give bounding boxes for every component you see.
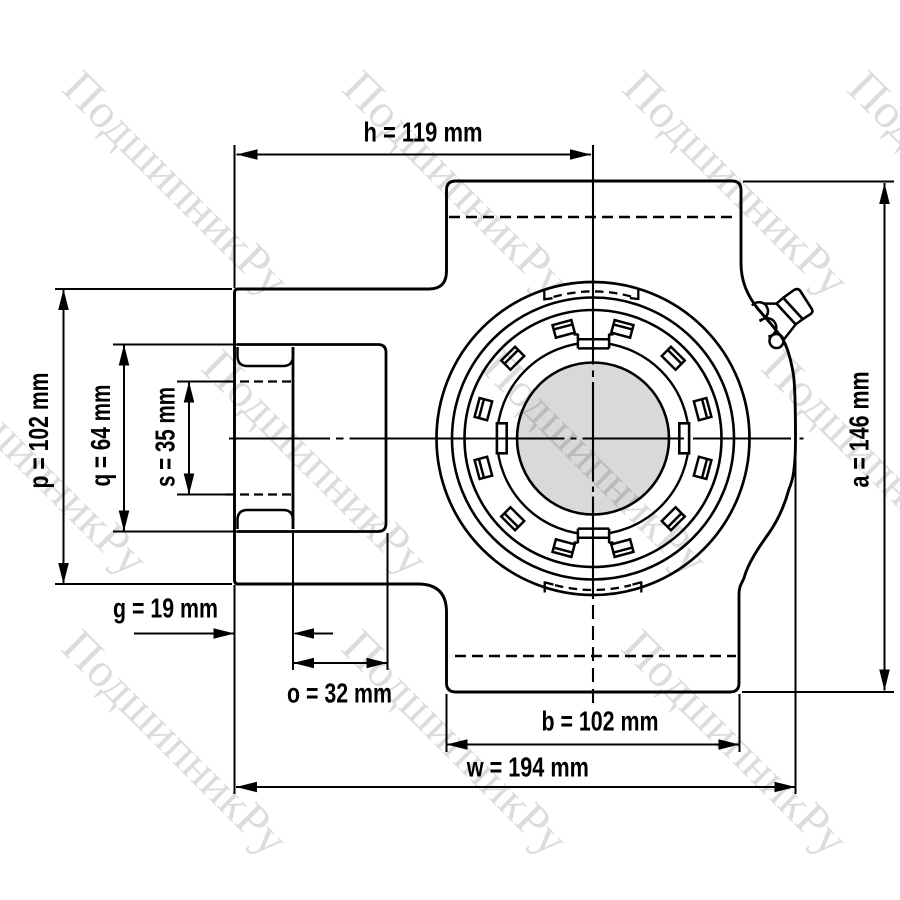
svg-text:ПодшипникРу: ПодшипникРу [333, 61, 579, 307]
svg-text:ПодшипникРу: ПодшипникРу [53, 61, 299, 307]
svg-text:ПодшипникРу: ПодшипникРу [613, 61, 859, 307]
svg-text:q = 64 mm: q = 64 mm [85, 385, 116, 487]
svg-text:g = 19 mm: g = 19 mm [113, 593, 218, 624]
svg-text:ПодшипникРу: ПодшипникРу [752, 340, 900, 586]
svg-text:s = 35 mm: s = 35 mm [150, 387, 181, 487]
svg-text:b = 102 mm: b = 102 mm [542, 706, 659, 737]
svg-text:ПодшипникРу: ПодшипникРу [52, 620, 298, 866]
svg-text:ПодшипникРу: ПодшипникРу [892, 620, 900, 866]
svg-text:ПодшипникРу: ПодшипникРу [192, 340, 438, 586]
